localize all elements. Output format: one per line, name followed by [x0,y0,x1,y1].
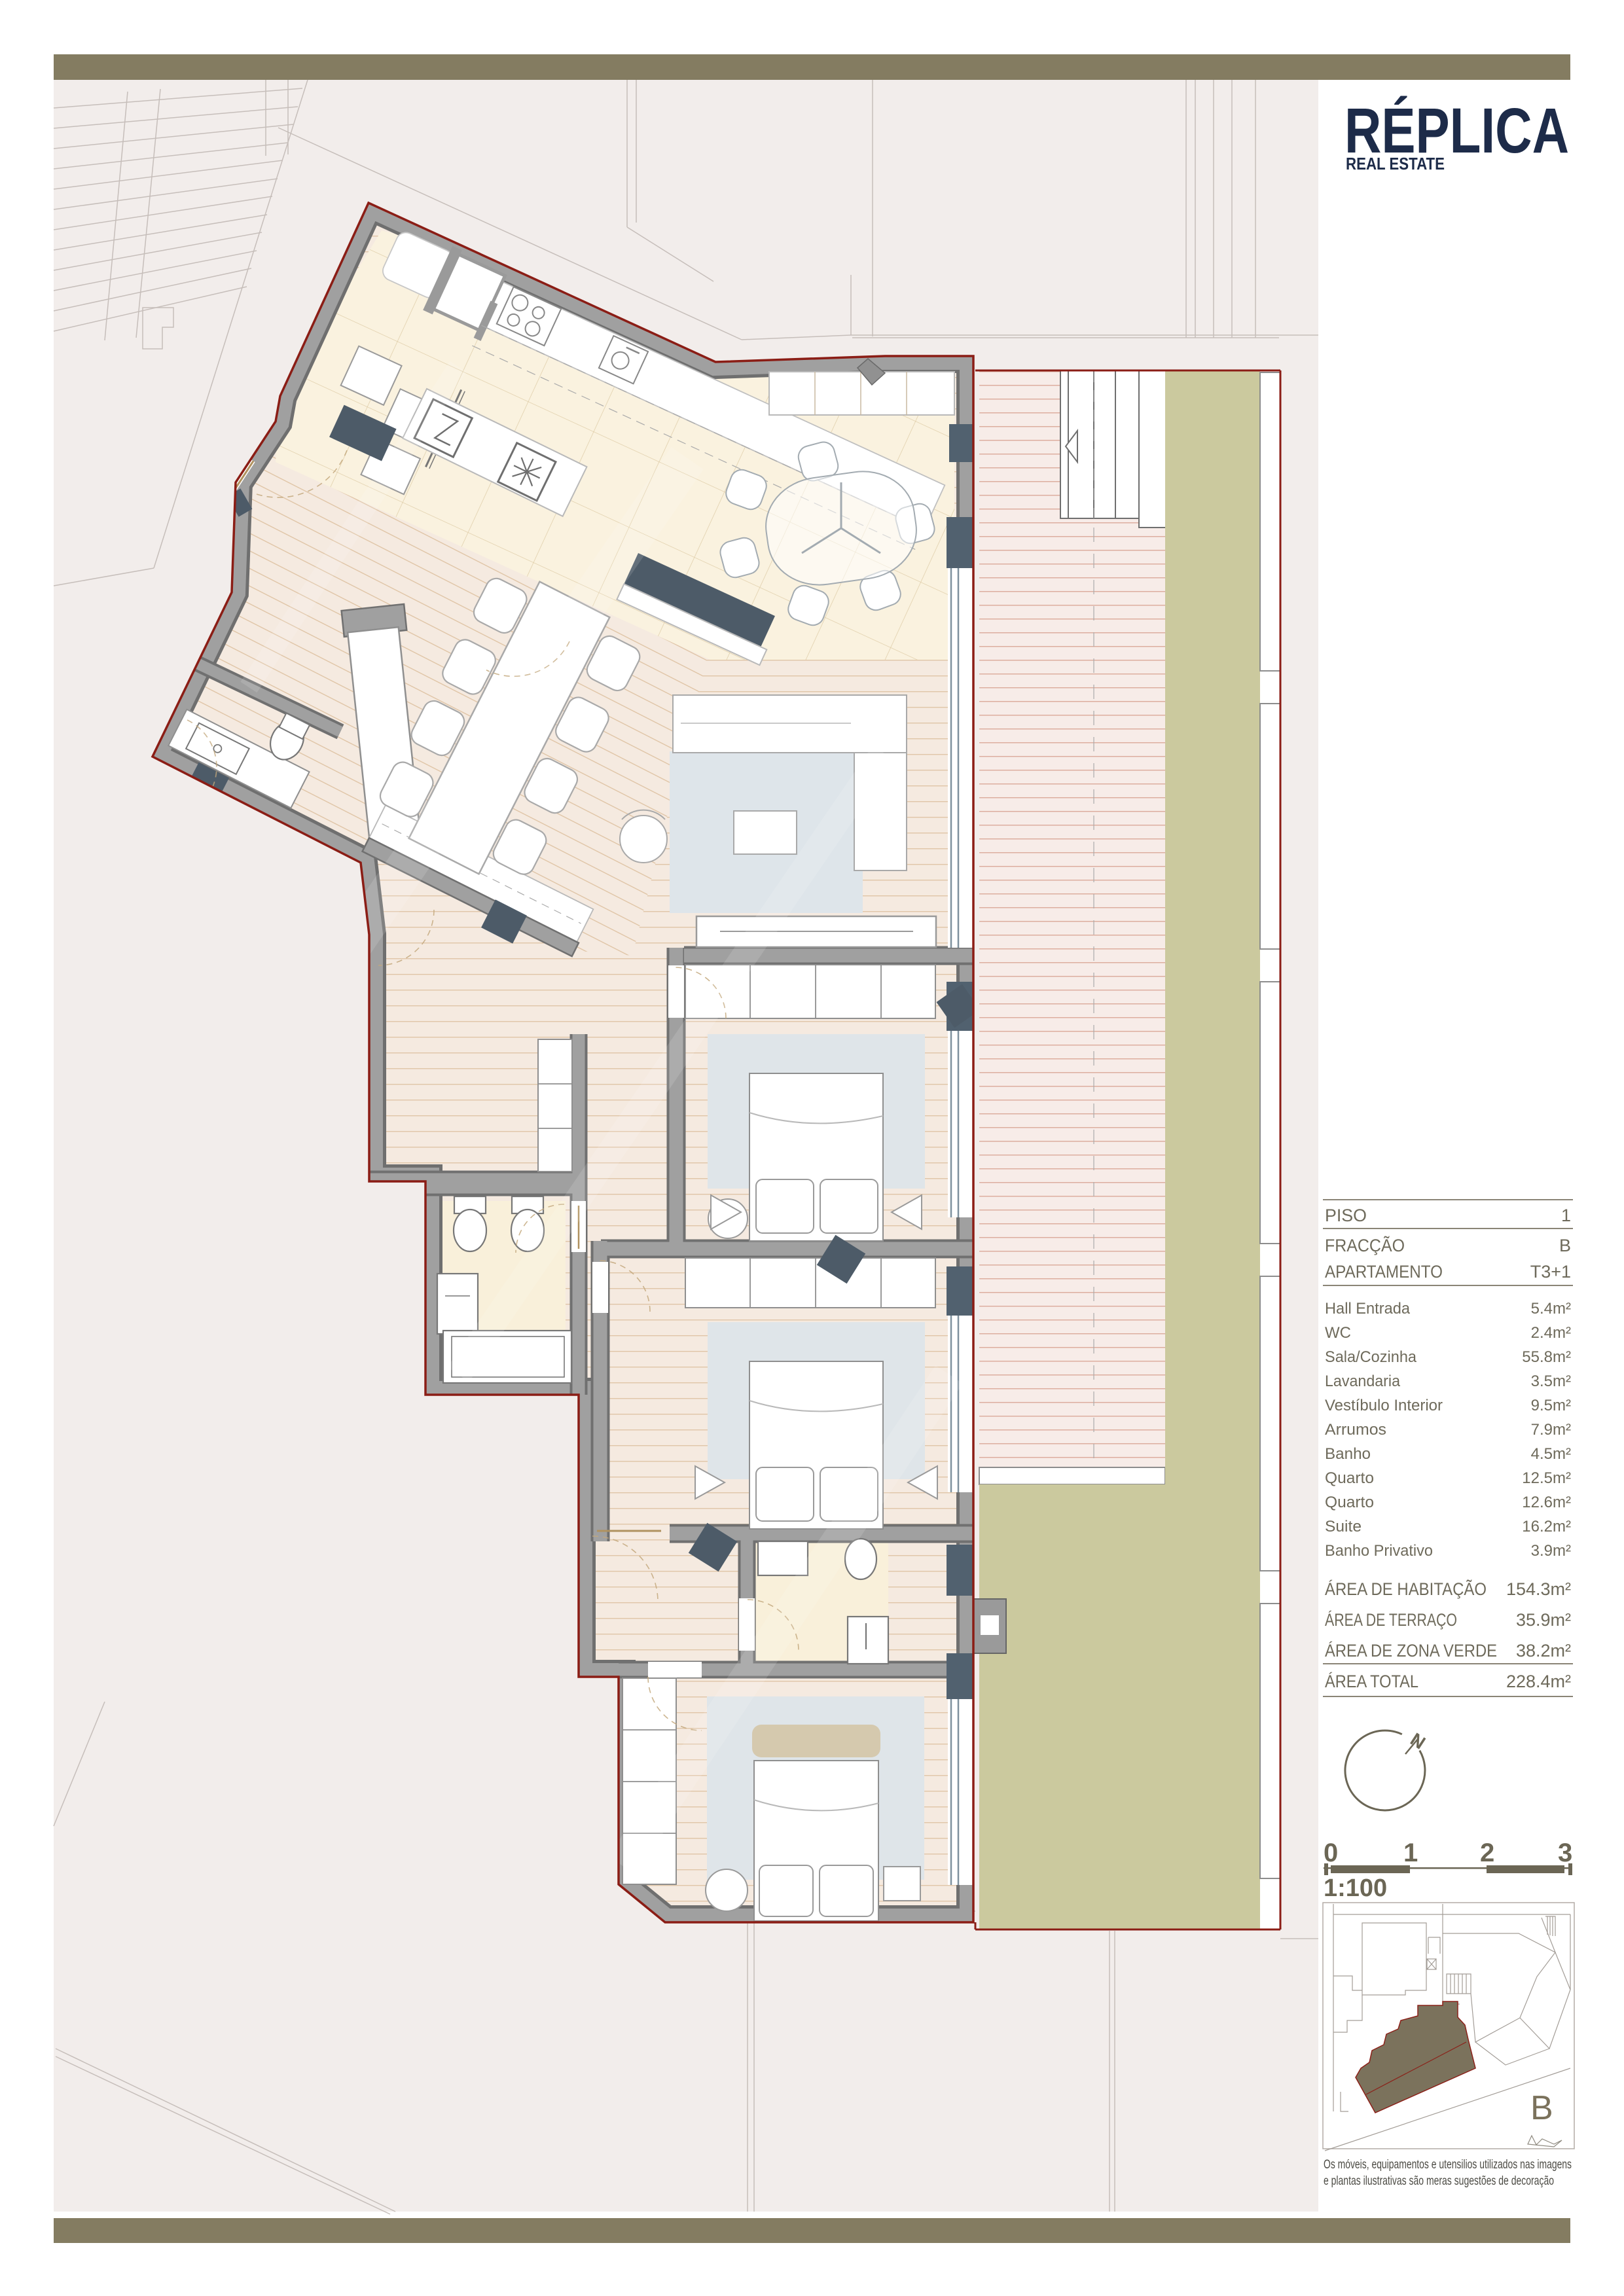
svg-text:Arrumos: Arrumos [1325,1421,1386,1439]
svg-text:B: B [1530,2089,1553,2127]
svg-text:2: 2 [1480,1839,1494,1867]
svg-text:3: 3 [1558,1839,1572,1867]
svg-text:Hall Entrada: Hall Entrada [1325,1300,1411,1318]
svg-text:ÁREA TOTAL: ÁREA TOTAL [1325,1672,1418,1691]
svg-text:1:100: 1:100 [1324,1874,1387,1902]
svg-text:9.5m²: 9.5m² [1531,1397,1571,1414]
svg-text:5.4m²: 5.4m² [1531,1300,1571,1318]
svg-text:228.4m²: 228.4m² [1506,1672,1571,1691]
svg-text:38.2m²: 38.2m² [1516,1641,1571,1660]
svg-text:0: 0 [1324,1839,1338,1867]
svg-text:PISO: PISO [1325,1206,1367,1225]
svg-text:7.9m²: 7.9m² [1531,1421,1571,1439]
svg-text:12.6m²: 12.6m² [1522,1494,1571,1511]
svg-text:Banho Privativo: Banho Privativo [1325,1542,1433,1560]
svg-text:ÁREA DE TERRAÇO: ÁREA DE TERRAÇO [1325,1610,1457,1630]
svg-text:12.5m²: 12.5m² [1522,1469,1571,1487]
svg-text:e plantas ilustrativas são mer: e plantas ilustrativas são meras sugestõ… [1324,2174,1554,2188]
svg-text:1: 1 [1403,1839,1418,1867]
svg-text:4.5m²: 4.5m² [1531,1445,1571,1463]
svg-text:16.2m²: 16.2m² [1522,1518,1571,1535]
svg-text:35.9m²: 35.9m² [1516,1610,1571,1630]
svg-text:Vestíbulo Interior: Vestíbulo Interior [1325,1397,1443,1414]
svg-text:55.8m²: 55.8m² [1522,1348,1571,1366]
svg-text:Lavandaria: Lavandaria [1325,1372,1401,1390]
svg-text:Quarto: Quarto [1325,1494,1374,1511]
svg-text:APARTAMENTO: APARTAMENTO [1325,1262,1443,1282]
svg-text:1: 1 [1561,1206,1571,1225]
svg-text:Os móveis, equipamentos e uten: Os móveis, equipamentos e utensilios uti… [1324,2157,1572,2172]
svg-text:REAL ESTATE: REAL ESTATE [1346,154,1445,173]
svg-text:T3+1: T3+1 [1530,1262,1571,1282]
svg-text:ÁREA DE HABITAÇÃO: ÁREA DE HABITAÇÃO [1325,1579,1487,1599]
svg-text:ÁREA DE ZONA VERDE: ÁREA DE ZONA VERDE [1325,1641,1497,1660]
svg-text:154.3m²: 154.3m² [1506,1579,1571,1599]
svg-text:Suite: Suite [1325,1518,1362,1535]
svg-text:B: B [1559,1236,1571,1255]
svg-text:3.9m²: 3.9m² [1531,1542,1571,1560]
svg-text:WC: WC [1325,1324,1351,1342]
svg-text:Quarto: Quarto [1325,1469,1374,1487]
svg-text:3.5m²: 3.5m² [1531,1372,1571,1390]
svg-text:FRACÇÃO: FRACÇÃO [1325,1235,1405,1255]
svg-text:2.4m²: 2.4m² [1531,1324,1571,1342]
svg-text:Sala/Cozinha: Sala/Cozinha [1325,1348,1417,1366]
svg-text:Banho: Banho [1325,1445,1371,1463]
